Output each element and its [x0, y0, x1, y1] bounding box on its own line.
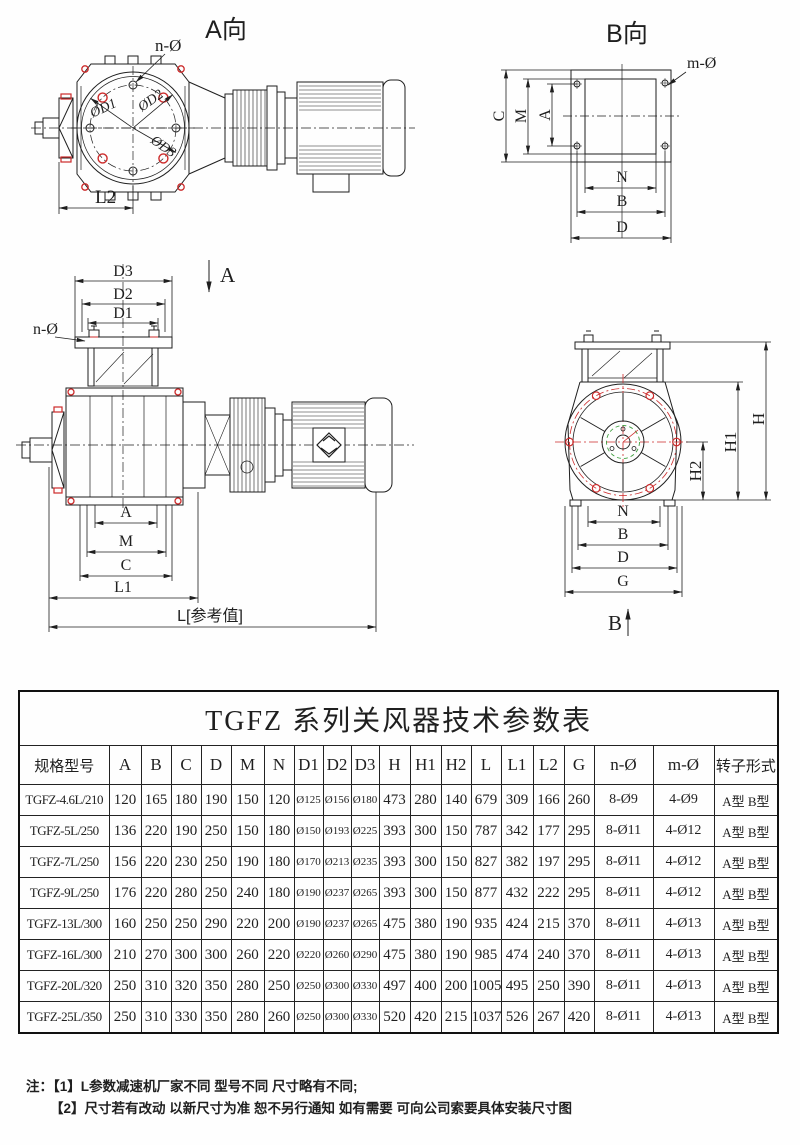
h1-dim-label: H1	[721, 432, 740, 453]
model-cell: TGFZ-13L/300	[19, 909, 109, 940]
col-header-G: G	[564, 746, 594, 785]
b-view-drawing: B向 m-Ø C M A N B D	[455, 8, 785, 258]
model-cell: TGFZ-20L/320	[19, 971, 109, 1002]
col-header-H: H	[379, 746, 410, 785]
n-dim-label: N	[617, 503, 629, 520]
value-cell: 260	[264, 1002, 294, 1034]
col-header-m-Ø: m-Ø	[653, 746, 714, 785]
value-cell: 475	[379, 909, 410, 940]
m-hole-label: m-Ø	[687, 55, 716, 72]
value-cell: 210	[109, 940, 141, 971]
value-cell: 150	[441, 847, 471, 878]
value-cell: 495	[501, 971, 533, 1002]
value-cell: 300	[171, 940, 201, 971]
value-cell: 165	[141, 785, 171, 816]
a-view-title: A向	[205, 16, 247, 44]
value-cell: 150	[231, 785, 264, 816]
model-cell: TGFZ-4.6L/210	[19, 785, 109, 816]
value-cell: Ø237	[323, 909, 351, 940]
value-cell: 280	[231, 1002, 264, 1034]
table-row: TGFZ-20L/320250310320350280250Ø250Ø300Ø3…	[19, 971, 778, 1002]
value-cell: 787	[471, 816, 501, 847]
col-header-D1: D1	[294, 746, 323, 785]
model-cell: TGFZ-7L/250	[19, 847, 109, 878]
value-cell: 177	[533, 816, 564, 847]
flange-bolts	[89, 326, 159, 337]
value-cell: 267	[533, 1002, 564, 1034]
gearbox-motor-side	[189, 80, 405, 192]
value-cell: 190	[201, 785, 231, 816]
n-hole-label: n-Ø	[33, 321, 58, 338]
table-row: TGFZ-25L/350250310330350280260Ø250Ø300Ø3…	[19, 1002, 778, 1034]
value-cell: Ø170	[294, 847, 323, 878]
value-cell: 370	[564, 909, 594, 940]
d1-dim-label: D1	[113, 305, 133, 322]
col-header-B: B	[141, 746, 171, 785]
value-cell: 300	[201, 940, 231, 971]
col-header-L1: L1	[501, 746, 533, 785]
value-cell: Ø225	[351, 816, 379, 847]
g-dim-label: G	[617, 573, 629, 590]
value-cell: 4-Ø12	[653, 878, 714, 909]
d2-diameter-label: ØD2	[135, 87, 167, 115]
value-cell: 4-Ø13	[653, 940, 714, 971]
value-cell: 250	[141, 909, 171, 940]
value-cell: 250	[109, 1002, 141, 1034]
value-cell: 342	[501, 816, 533, 847]
a-view-drawing: A向 n-Ø ØD1 ØD2 ØD3 L2	[15, 6, 445, 246]
col-header-规格型号: 规格型号	[19, 746, 109, 785]
l2-dim-label: L2	[95, 187, 116, 208]
value-cell: 8-Ø11	[594, 847, 653, 878]
table-row: TGFZ-13L/300160250250290220200Ø190Ø237Ø2…	[19, 909, 778, 940]
value-cell: Ø190	[294, 909, 323, 940]
value-cell: 190	[171, 816, 201, 847]
value-cell: A型 B型	[714, 971, 778, 1002]
model-cell: TGFZ-5L/250	[19, 816, 109, 847]
d2-dim-label: D2	[113, 286, 133, 303]
value-cell: A型 B型	[714, 785, 778, 816]
footnotes: 注：【1】L参数减速机厂家不同 型号不同 尺寸略有不同; 【2】尺寸若有改动 以…	[26, 1076, 572, 1120]
front-view-drawing: D3 D2 D1 n-Ø A A M C L1 L[参考值]	[10, 252, 430, 642]
m-holes	[572, 78, 670, 151]
value-cell: 200	[441, 971, 471, 1002]
value-cell: 827	[471, 847, 501, 878]
value-cell: 240	[533, 940, 564, 971]
value-cell: 475	[379, 940, 410, 971]
value-cell: 8-Ø11	[594, 1002, 653, 1034]
value-cell: 382	[501, 847, 533, 878]
d-dim-label: D	[616, 219, 628, 236]
value-cell: 220	[141, 816, 171, 847]
value-cell: 1037	[471, 1002, 501, 1034]
value-cell: Ø250	[294, 1002, 323, 1034]
h2-dim-label: H2	[686, 461, 705, 482]
value-cell: 8-Ø11	[594, 909, 653, 940]
value-cell: 180	[171, 785, 201, 816]
value-cell: Ø213	[323, 847, 351, 878]
value-cell: 420	[410, 1002, 441, 1034]
m-dim-label: M	[119, 533, 133, 550]
value-cell: 215	[441, 1002, 471, 1034]
c-dim-label: C	[491, 111, 508, 122]
value-cell: 280	[231, 971, 264, 1002]
value-cell: 4-Ø13	[653, 971, 714, 1002]
value-cell: 4-Ø12	[653, 847, 714, 878]
section-a-label: A	[220, 263, 236, 287]
value-cell: Ø260	[323, 940, 351, 971]
col-header-A: A	[109, 746, 141, 785]
value-cell: Ø290	[351, 940, 379, 971]
value-cell: 200	[264, 909, 294, 940]
b-dim-label: B	[617, 193, 628, 210]
a-dim-label: A	[120, 504, 132, 521]
value-cell: 250	[201, 847, 231, 878]
col-header-M: M	[231, 746, 264, 785]
value-cell: 424	[501, 909, 533, 940]
d-dim-label: D	[617, 549, 629, 566]
value-cell: Ø300	[323, 971, 351, 1002]
spec-table: TGFZ 系列关风器技术参数表 规格型号ABCDMND1D2D3HH1H2LL1…	[18, 690, 779, 1034]
value-cell: Ø180	[351, 785, 379, 816]
spec-table-container: TGFZ 系列关风器技术参数表 规格型号ABCDMND1D2D3HH1H2LL1…	[18, 690, 779, 1034]
value-cell: A型 B型	[714, 909, 778, 940]
m-dim-label: M	[513, 109, 530, 123]
col-header-n-Ø: n-Ø	[594, 746, 653, 785]
b-view-title: B向	[606, 20, 648, 48]
value-cell: A型 B型	[714, 940, 778, 971]
l1-dim-label: L1	[114, 579, 132, 596]
value-cell: 310	[141, 1002, 171, 1034]
value-cell: 420	[564, 1002, 594, 1034]
valve-body	[66, 388, 183, 505]
value-cell: 380	[410, 909, 441, 940]
value-cell: 222	[533, 878, 564, 909]
side-view-drawing: H H1 H2 N B D G B	[540, 252, 795, 642]
value-cell: 136	[109, 816, 141, 847]
value-cell: 295	[564, 878, 594, 909]
col-header-H2: H2	[441, 746, 471, 785]
value-cell: 120	[109, 785, 141, 816]
value-cell: 150	[441, 816, 471, 847]
value-cell: 8-Ø9	[594, 785, 653, 816]
model-cell: TGFZ-25L/350	[19, 1002, 109, 1034]
model-cell: TGFZ-16L/300	[19, 940, 109, 971]
value-cell: 270	[141, 940, 171, 971]
value-cell: 380	[410, 940, 441, 971]
value-cell: 393	[379, 878, 410, 909]
value-cell: 190	[441, 909, 471, 940]
value-cell: Ø193	[323, 816, 351, 847]
section-b-label: B	[608, 611, 622, 635]
value-cell: 8-Ø11	[594, 878, 653, 909]
b-dim-label: B	[618, 526, 629, 543]
value-cell: 260	[564, 785, 594, 816]
value-cell: 935	[471, 909, 501, 940]
value-cell: 497	[379, 971, 410, 1002]
value-cell: 230	[171, 847, 201, 878]
value-cell: 432	[501, 878, 533, 909]
value-cell: 240	[231, 878, 264, 909]
value-cell: 370	[564, 940, 594, 971]
value-cell: Ø235	[351, 847, 379, 878]
value-cell: 180	[264, 878, 294, 909]
body-corner-bolts	[68, 389, 181, 504]
value-cell: 1005	[471, 971, 501, 1002]
value-cell: Ø190	[294, 878, 323, 909]
value-cell: 8-Ø11	[594, 816, 653, 847]
b-view-dimensions	[501, 70, 671, 243]
value-cell: 156	[109, 847, 141, 878]
d3-diameter-label: ØD3	[147, 133, 179, 161]
technical-drawing-page: A向 n-Ø ØD1 ØD2 ØD3 L2	[0, 0, 800, 1145]
value-cell: 166	[533, 785, 564, 816]
value-cell: 4-Ø12	[653, 816, 714, 847]
col-header-L: L	[471, 746, 501, 785]
col-header-C: C	[171, 746, 201, 785]
value-cell: 8-Ø11	[594, 971, 653, 1002]
value-cell: Ø250	[294, 971, 323, 1002]
table-row: TGFZ-9L/250176220280250240180Ø190Ø237Ø26…	[19, 878, 778, 909]
value-cell: 215	[533, 909, 564, 940]
d1-diameter-label: ØD1	[87, 96, 119, 122]
note-prefix: 注：	[26, 1079, 53, 1094]
value-cell: 220	[231, 909, 264, 940]
value-cell: 197	[533, 847, 564, 878]
value-cell: 300	[410, 847, 441, 878]
value-cell: A型 B型	[714, 1002, 778, 1034]
value-cell: 393	[379, 816, 410, 847]
value-cell: 250	[109, 971, 141, 1002]
value-cell: 320	[171, 971, 201, 1002]
d3-dim-label: D3	[113, 263, 133, 280]
value-cell: 120	[264, 785, 294, 816]
l-ref-dim-label: L[参考值]	[177, 607, 243, 625]
note-line-1: 注：【1】L参数减速机厂家不同 型号不同 尺寸略有不同;	[26, 1076, 572, 1098]
value-cell: 220	[141, 847, 171, 878]
col-header-D2: D2	[323, 746, 351, 785]
value-cell: 4-Ø9	[653, 785, 714, 816]
value-cell: 176	[109, 878, 141, 909]
table-row: TGFZ-7L/250156220230250190180Ø170Ø213Ø23…	[19, 847, 778, 878]
rotor-face	[555, 374, 691, 510]
value-cell: 190	[441, 940, 471, 971]
n-hole-label: n-Ø	[155, 36, 181, 55]
col-header-转子形式: 转子形式	[714, 746, 778, 785]
value-cell: 295	[564, 816, 594, 847]
inlet-flange	[75, 326, 172, 386]
value-cell: 350	[201, 971, 231, 1002]
value-cell: 290	[201, 909, 231, 940]
table-title: TGFZ 系列关风器技术参数表	[19, 691, 778, 746]
value-cell: 220	[264, 940, 294, 971]
value-cell: Ø125	[294, 785, 323, 816]
value-cell: 679	[471, 785, 501, 816]
value-cell: 330	[171, 1002, 201, 1034]
value-cell: A型 B型	[714, 847, 778, 878]
value-cell: Ø265	[351, 878, 379, 909]
h-dim-label: H	[749, 413, 768, 425]
value-cell: Ø330	[351, 1002, 379, 1034]
value-cell: 393	[379, 847, 410, 878]
a-dim-label: A	[537, 109, 554, 121]
left-shaft-end	[22, 407, 64, 493]
value-cell: 300	[410, 878, 441, 909]
value-cell: 190	[231, 847, 264, 878]
value-cell: 250	[201, 878, 231, 909]
value-cell: 390	[564, 971, 594, 1002]
value-cell: 4-Ø13	[653, 909, 714, 940]
terminal-box	[313, 174, 349, 192]
value-cell: Ø330	[351, 971, 379, 1002]
value-cell: 250	[533, 971, 564, 1002]
value-cell: 250	[264, 971, 294, 1002]
value-cell: Ø300	[323, 1002, 351, 1034]
value-cell: 260	[231, 940, 264, 971]
value-cell: A型 B型	[714, 816, 778, 847]
value-cell: 310	[141, 971, 171, 1002]
value-cell: Ø237	[323, 878, 351, 909]
value-cell: 280	[410, 785, 441, 816]
value-cell: 220	[141, 878, 171, 909]
value-cell: 140	[441, 785, 471, 816]
value-cell: 250	[171, 909, 201, 940]
inlet-flange-side	[575, 331, 670, 382]
table-row: TGFZ-4.6L/210120165180190150120Ø125Ø156Ø…	[19, 785, 778, 816]
model-cell: TGFZ-9L/250	[19, 878, 109, 909]
col-header-D3: D3	[351, 746, 379, 785]
value-cell: A型 B型	[714, 878, 778, 909]
value-cell: 985	[471, 940, 501, 971]
value-cell: 180	[264, 847, 294, 878]
value-cell: 400	[410, 971, 441, 1002]
value-cell: 180	[264, 816, 294, 847]
value-cell: 309	[501, 785, 533, 816]
value-cell: 150	[231, 816, 264, 847]
value-cell: Ø265	[351, 909, 379, 940]
value-cell: Ø156	[323, 785, 351, 816]
value-cell: 300	[410, 816, 441, 847]
col-header-D: D	[201, 746, 231, 785]
value-cell: 295	[564, 847, 594, 878]
value-cell: Ø220	[294, 940, 323, 971]
value-cell: 4-Ø13	[653, 1002, 714, 1034]
value-cell: 8-Ø11	[594, 940, 653, 971]
table-row: TGFZ-16L/300210270300300260220Ø220Ø260Ø2…	[19, 940, 778, 971]
value-cell: 250	[201, 816, 231, 847]
value-cell: 526	[501, 1002, 533, 1034]
col-header-N: N	[264, 746, 294, 785]
table-row: TGFZ-5L/250136220190250150180Ø150Ø193Ø22…	[19, 816, 778, 847]
value-cell: 473	[379, 785, 410, 816]
col-header-L2: L2	[533, 746, 564, 785]
value-cell: Ø150	[294, 816, 323, 847]
value-cell: 520	[379, 1002, 410, 1034]
value-cell: 280	[171, 878, 201, 909]
note-line-2: 【2】尺寸若有改动 以新尺寸为准 恕不另行通知 如有需要 可向公司索要具体安装尺…	[26, 1098, 572, 1120]
value-cell: 160	[109, 909, 141, 940]
value-cell: 474	[501, 940, 533, 971]
value-cell: 877	[471, 878, 501, 909]
c-dim-label: C	[121, 557, 132, 574]
col-header-H1: H1	[410, 746, 441, 785]
value-cell: 350	[201, 1002, 231, 1034]
value-cell: 150	[441, 878, 471, 909]
n-dim-label: N	[616, 169, 628, 186]
